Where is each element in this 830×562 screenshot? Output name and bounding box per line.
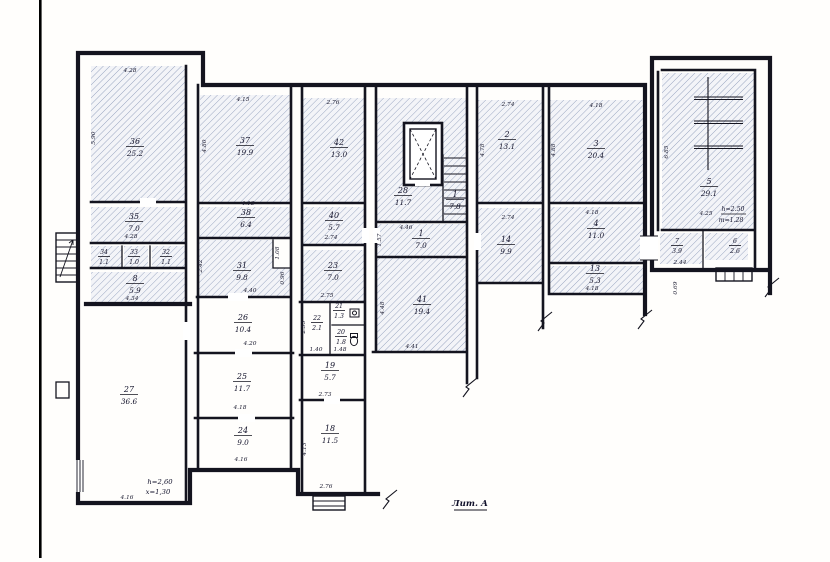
room-31-fill xyxy=(197,240,273,297)
room-area: 11.7 xyxy=(395,198,412,207)
floor-plan-page: 3625.2357.0341.1331.0321.185.93719.9386.… xyxy=(0,0,830,562)
room-number: 25 xyxy=(236,372,247,381)
room-number: 18 xyxy=(325,424,335,433)
room-number: 1 xyxy=(418,229,423,238)
dim-label: 2.74 xyxy=(500,102,514,108)
room-label-20: 201.8 xyxy=(335,329,347,346)
room-number: 26 xyxy=(237,313,248,322)
room27-note-line2: x=1,30 xyxy=(146,488,171,496)
room-area: 1.1 xyxy=(161,259,171,266)
dim-label: 4.41 xyxy=(404,344,418,350)
room-area: 13.1 xyxy=(499,142,515,151)
dim-label: 4.18 xyxy=(232,405,246,411)
room-area: 3.9 xyxy=(672,248,682,255)
room-number: 3 xyxy=(593,139,598,148)
room-label-18: 1811.5 xyxy=(321,424,339,445)
room-number: 41 xyxy=(416,295,427,304)
dim-label: 2.74 xyxy=(323,235,337,241)
room-number: 31 xyxy=(237,261,247,270)
dim-label: 4.40 xyxy=(242,288,256,294)
room-area: 7.8 xyxy=(449,202,461,211)
room-area: 5.7 xyxy=(324,373,336,382)
dim-label: 4.20 xyxy=(242,341,256,347)
room-area: 6.4 xyxy=(240,220,252,229)
room-number: 4 xyxy=(592,219,598,228)
room-area: 7.0 xyxy=(327,273,339,282)
room-area: 9.8 xyxy=(236,273,248,282)
room-number: 27 xyxy=(123,385,135,394)
room-area: 19.4 xyxy=(414,307,431,316)
room-2-fill xyxy=(478,100,543,203)
room-area: 5.7 xyxy=(328,223,340,232)
floor-plan-canvas: 3625.2357.0341.1331.0321.185.93719.9386.… xyxy=(0,0,830,562)
room-area: 29.1 xyxy=(700,189,717,198)
room5-note-line2: т=1.28 xyxy=(719,217,744,224)
room-number: 36 xyxy=(130,137,140,146)
dim-label: 4.13 xyxy=(240,201,254,207)
dim-label: 4.18 xyxy=(588,103,602,109)
room-area: 11.0 xyxy=(588,231,605,240)
room-label-22: 222.1 xyxy=(311,315,323,332)
room-number: 38 xyxy=(241,208,251,217)
room-number: 32 xyxy=(162,249,170,256)
dim-label: 4.15 xyxy=(235,97,249,103)
room-number: 20 xyxy=(336,329,345,336)
page-edge-line xyxy=(39,0,42,558)
room-area: 9.9 xyxy=(500,247,512,256)
room-number: 23 xyxy=(327,261,338,270)
porch-left xyxy=(56,382,69,398)
dim-label: 1.57 xyxy=(377,233,383,246)
room-number: 2 xyxy=(503,130,509,139)
room-number: 7 xyxy=(675,238,679,245)
room-number: 22 xyxy=(312,315,321,322)
dim-label: 2.74 xyxy=(500,215,514,221)
room-label-26: 2610.4 xyxy=(234,313,252,334)
dim-label: 1.08 xyxy=(275,246,281,259)
dim-label: 6.85 xyxy=(664,145,670,158)
room-area: 36.6 xyxy=(121,397,138,406)
room-label-21: 211.3 xyxy=(333,303,345,320)
room-area: 1.1 xyxy=(99,259,109,266)
dim-label: 4.88 xyxy=(551,143,557,157)
room-area: 20.4 xyxy=(587,151,605,160)
dim-label: 4.18 xyxy=(584,286,598,292)
elevator-shaft xyxy=(404,123,442,186)
dim-label: 4.18 xyxy=(584,210,598,216)
room-number: 14 xyxy=(501,235,511,244)
room27-note-line1: h=2,60 xyxy=(147,478,173,486)
dim-label: 4.34 xyxy=(124,296,138,302)
dim-label: 2.76 xyxy=(318,484,332,490)
dim-label: 4.48 xyxy=(380,301,386,315)
room-area: 5.3 xyxy=(589,276,601,285)
room-number: 28 xyxy=(397,186,408,195)
room-area: 13.0 xyxy=(331,150,348,159)
toilet-icon xyxy=(350,334,357,346)
room-number: 8 xyxy=(132,274,137,283)
room-area: 1.0 xyxy=(129,259,139,266)
dim-label: 4.25 xyxy=(698,211,712,217)
room-36-fill xyxy=(91,66,185,202)
room-area: 7.0 xyxy=(128,224,140,233)
room-area: 25.2 xyxy=(126,149,144,158)
dim-label: 2.76 xyxy=(325,100,339,106)
room-area: 11.7 xyxy=(234,384,251,393)
dim-label: 4.16 xyxy=(119,495,133,501)
dim-label: 1.40 xyxy=(309,347,322,353)
room-number: 42 xyxy=(333,138,344,147)
room-number: 21 xyxy=(334,303,343,310)
dim-label: 4.46 xyxy=(398,225,412,231)
room-area: 5.9 xyxy=(129,286,141,295)
room-label-24: 249.0 xyxy=(234,426,252,447)
room-number: 24 xyxy=(237,426,248,435)
entry-steps-center xyxy=(313,496,345,510)
room-area: 2.6 xyxy=(729,248,740,255)
room-number: 34 xyxy=(100,249,108,256)
dim-label: 1.48 xyxy=(333,347,346,353)
room-number: 5 xyxy=(706,177,711,186)
room-area: 10.4 xyxy=(235,325,252,334)
dim-label: 2.44 xyxy=(672,260,686,266)
dim-label: 0.96 xyxy=(280,271,286,284)
room-area: 19.9 xyxy=(237,148,254,157)
dim-label: 0.69 xyxy=(673,281,679,294)
room-41-fill xyxy=(375,258,467,352)
room-area: 7.0 xyxy=(415,241,427,250)
room-number: 33 xyxy=(130,249,138,256)
room-6-fill xyxy=(705,233,748,260)
dim-label: 4.28 xyxy=(122,68,136,74)
exterior-stair-left xyxy=(56,233,78,282)
room-number: 1 xyxy=(452,190,457,199)
dim-label: 4.80 xyxy=(202,139,208,153)
sink-icon xyxy=(350,309,359,317)
dim-label: 5.90 xyxy=(91,131,97,144)
room-number: 19 xyxy=(325,361,335,370)
dim-label: 4.16 xyxy=(233,457,247,463)
dim-label: 4.78 xyxy=(480,143,486,157)
room-number: 6 xyxy=(733,238,737,245)
room-number: 13 xyxy=(590,264,600,273)
dim-label: 2.53 xyxy=(301,320,307,334)
room-label-19: 195.7 xyxy=(321,361,339,382)
room-number: 37 xyxy=(240,136,251,145)
dim-label: 2.75 xyxy=(319,293,333,299)
room-area: 2.1 xyxy=(311,325,322,332)
dim-label: 2.73 xyxy=(317,392,331,398)
room-area: 1.8 xyxy=(336,339,346,346)
room-number: 40 xyxy=(328,211,339,220)
room-area: 9.0 xyxy=(237,438,249,447)
dim-label: 4.28 xyxy=(123,234,137,240)
room-area: 11.5 xyxy=(322,436,339,445)
dim-label: 4.13 xyxy=(302,442,308,456)
room5-note-line1: h=2.50 xyxy=(722,206,745,213)
litera-label: Лит. А xyxy=(451,499,488,509)
room-label-25: 2511.7 xyxy=(233,372,251,393)
room-label-27: 2736.6 xyxy=(120,385,138,406)
room-number: 35 xyxy=(129,212,139,221)
dim-label: 2.42 xyxy=(198,259,204,273)
room-area: 1.3 xyxy=(334,313,344,320)
